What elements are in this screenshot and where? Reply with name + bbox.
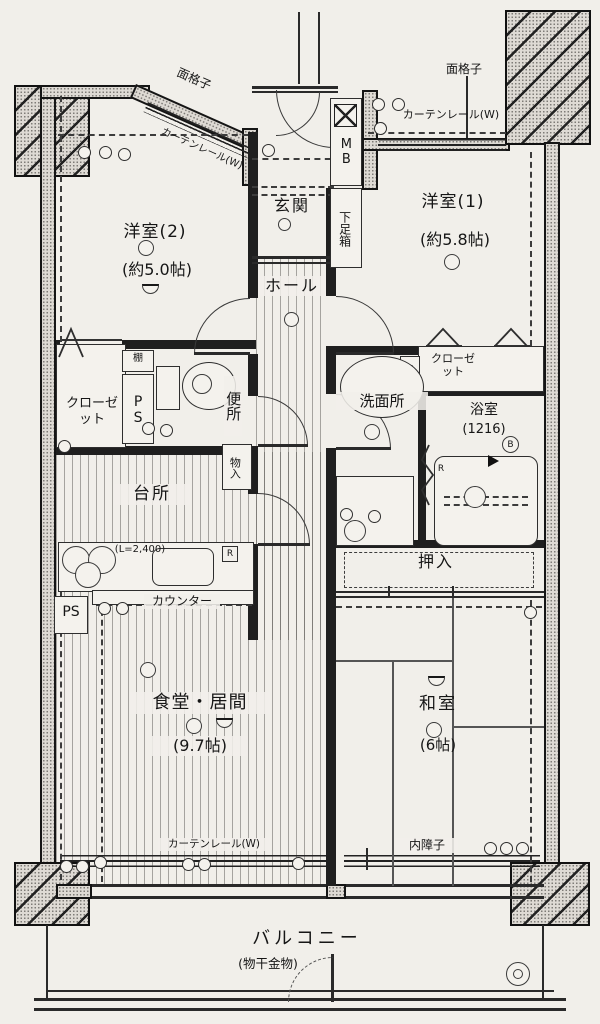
balcony-side <box>46 925 48 1000</box>
outlet-icon <box>78 146 91 159</box>
uchishoji-label: 内障子 <box>396 838 458 853</box>
front-door-arc <box>232 48 320 136</box>
stove-burner-icon <box>75 562 101 588</box>
room-label-yoshitsu2: 洋室(2) <box>100 222 210 243</box>
refrigerator-mark: R <box>222 546 238 562</box>
pillar-bottom-right <box>510 862 590 926</box>
washroom-light-icon <box>364 424 380 440</box>
light-icon <box>444 254 460 270</box>
beam-dashed <box>60 96 62 342</box>
window-tick <box>366 848 368 870</box>
balcony-side <box>542 925 544 1000</box>
outlet-icon <box>60 860 73 873</box>
outlet-icon <box>262 144 275 157</box>
bifold-door-icon <box>58 328 84 358</box>
drain-icon <box>513 969 523 979</box>
outlet-icon <box>500 842 513 855</box>
light-icon <box>186 718 202 734</box>
outlet-icon <box>340 508 353 521</box>
room-label-oshiire: 押入 <box>404 552 468 572</box>
bathtub-waterline <box>444 504 528 506</box>
tatami-line <box>336 660 452 662</box>
curtain-rail-label: カーテンレール(W) <box>158 838 270 851</box>
bathtub-drain-icon <box>464 486 486 508</box>
wall-left <box>40 85 56 900</box>
entry-door-header <box>252 86 338 89</box>
window-balcony-washitsu <box>344 855 540 869</box>
outlet-icon <box>58 440 71 453</box>
closet-left-label: クローゼット <box>64 396 120 428</box>
mengoshi-label: 面格子 <box>436 62 492 77</box>
wall-bottom-stub <box>56 884 92 899</box>
room-label-bath: 浴室 <box>452 402 516 419</box>
wall-oshiire-left <box>326 540 336 600</box>
outlet-icon <box>142 422 155 435</box>
window-top-right <box>378 139 506 151</box>
genkan-step <box>252 256 330 259</box>
room-label-washitsu: 和室 <box>404 694 472 715</box>
arrow-icon <box>488 455 499 467</box>
outlet-icon <box>160 424 173 437</box>
outlet-icon <box>116 602 129 615</box>
light-icon <box>140 662 156 678</box>
door-leaf <box>258 444 308 447</box>
mengoshi-label: 面格子 <box>167 62 220 97</box>
wall-right <box>544 142 560 900</box>
door-leaf <box>336 352 394 355</box>
pillar-top-right <box>505 10 591 145</box>
porch-line <box>298 12 300 84</box>
b-mark: B <box>502 436 519 453</box>
oshiire-track <box>336 596 544 598</box>
toilet-tank-icon <box>156 366 180 410</box>
balcony-rail <box>34 1008 566 1011</box>
outlet-icon <box>524 606 537 619</box>
room-size-yoshitsu1: (約5.8帖) <box>390 230 520 250</box>
bathtub-waterline <box>444 496 528 498</box>
track-tick <box>452 586 454 598</box>
light-icon <box>284 312 299 327</box>
room-label-toilet: 便所 <box>224 376 242 436</box>
wall-hall-right <box>326 352 336 394</box>
wall-hall-left <box>248 354 258 396</box>
closet-right-label: クローゼット <box>430 352 476 379</box>
room-label-kitchen: 台所 <box>114 484 190 505</box>
storage-label: 物入 <box>228 450 241 486</box>
room-label-hall: ホール <box>258 276 326 296</box>
beam-dashed <box>530 600 532 882</box>
wall-light-icon <box>428 676 445 686</box>
mengoshi-leader-line <box>466 76 468 138</box>
outlet-icon <box>118 148 131 161</box>
pipe-space-label: PS <box>54 604 88 621</box>
door-leaf <box>194 352 250 355</box>
outlet-icon <box>516 842 529 855</box>
genkan-step <box>252 262 330 264</box>
counter-length-label: (L=2,400) <box>108 544 172 556</box>
shoe-box-label: 下足箱 <box>337 196 352 262</box>
meter-box-label: MB <box>338 132 354 172</box>
wall-bottom-stub <box>326 884 346 899</box>
wall-light-icon <box>142 284 159 294</box>
balcony-note-label: (物干金物) <box>212 956 324 971</box>
meter-box-x-icon <box>334 104 357 127</box>
track-tick <box>388 586 390 598</box>
wall-dining-washitsu <box>326 598 336 886</box>
outlet-icon <box>292 857 305 870</box>
bathtub-icon <box>434 456 538 546</box>
curtain-rail-dashed <box>368 132 506 134</box>
outlet-icon <box>484 842 497 855</box>
outlet-icon <box>182 858 195 871</box>
outlet-icon <box>372 98 385 111</box>
room-label-washroom: 洗面所 <box>336 392 428 410</box>
room-label-dining: 食堂・居間 <box>130 692 270 714</box>
bifold-door-icon <box>426 328 460 347</box>
wall-hall-right <box>326 448 336 544</box>
door-leaf <box>336 447 391 450</box>
room-size-dining: (9.7帖) <box>152 736 248 756</box>
outlet-icon <box>76 860 89 873</box>
shelf-label: 棚 <box>122 353 154 365</box>
outlet-icon <box>98 602 111 615</box>
washitsu-dashed <box>336 606 542 608</box>
room-label-genkan: 玄関 <box>256 196 328 216</box>
outlet-icon <box>94 856 107 869</box>
room-size-washitsu: (6帖) <box>400 736 476 754</box>
balcony-label: バルコニー <box>242 928 372 950</box>
tatami-line <box>392 660 394 886</box>
wall-bottom-line <box>56 884 544 887</box>
wall-bottom-line <box>56 896 544 899</box>
beam-dashed <box>530 152 532 346</box>
washing-machine-drain-icon <box>344 520 366 542</box>
counter-label: カウンター <box>144 594 220 609</box>
beam-dashed <box>101 600 103 882</box>
genkan-dashed <box>252 186 334 188</box>
room-size-bath: (1216) <box>446 422 522 438</box>
bath-folding-door-icon <box>420 444 436 506</box>
room-size-yoshitsu2: (約5.0帖) <box>92 260 222 280</box>
outlet-icon <box>198 858 211 871</box>
curtain-rail-label: カーテンレール(W) <box>396 108 506 121</box>
outlet-icon <box>99 146 112 159</box>
toilet-detail-icon <box>192 374 212 394</box>
door-leaf <box>258 543 310 546</box>
outlet-icon <box>368 510 381 523</box>
tatami-line <box>452 726 544 728</box>
oshiire-track <box>336 591 544 593</box>
light-icon <box>278 218 291 231</box>
r-mark: R <box>434 464 448 475</box>
bifold-door-icon <box>494 328 528 347</box>
porch-line <box>318 12 320 84</box>
floor-plan: MB 下足箱 クローゼット 棚 PS 物入 クローゼット PS PS B R R… <box>0 0 600 1024</box>
outlet-icon <box>374 122 387 135</box>
room-label-yoshitsu1: 洋室(1) <box>398 192 508 213</box>
